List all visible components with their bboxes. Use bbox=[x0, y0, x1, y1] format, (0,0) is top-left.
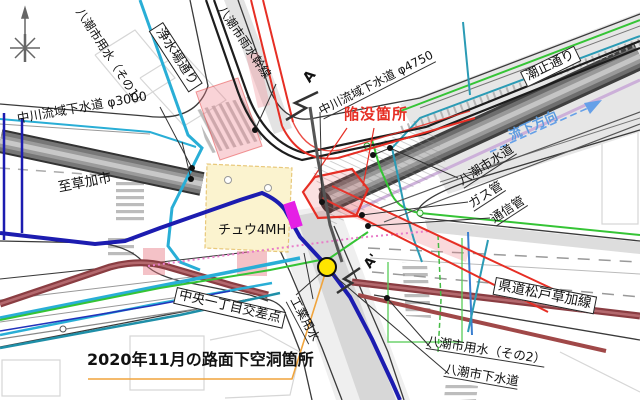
label-cavity-2020: 2020年11月の路面下空洞箇所 bbox=[87, 351, 314, 369]
cavity-location-marker bbox=[318, 258, 336, 276]
north-arrow-icon bbox=[10, 8, 40, 62]
label-collapse-location: 陥没箇所 bbox=[344, 106, 408, 123]
utility-map: 八潮市用水（その1） 浄水場通り 八潮市雨水幹線 中川流域下水道 φ4750 潮… bbox=[0, 0, 640, 400]
label-chu4mh: チュウ4MH bbox=[218, 224, 286, 239]
collapse-area-outline bbox=[303, 169, 368, 218]
